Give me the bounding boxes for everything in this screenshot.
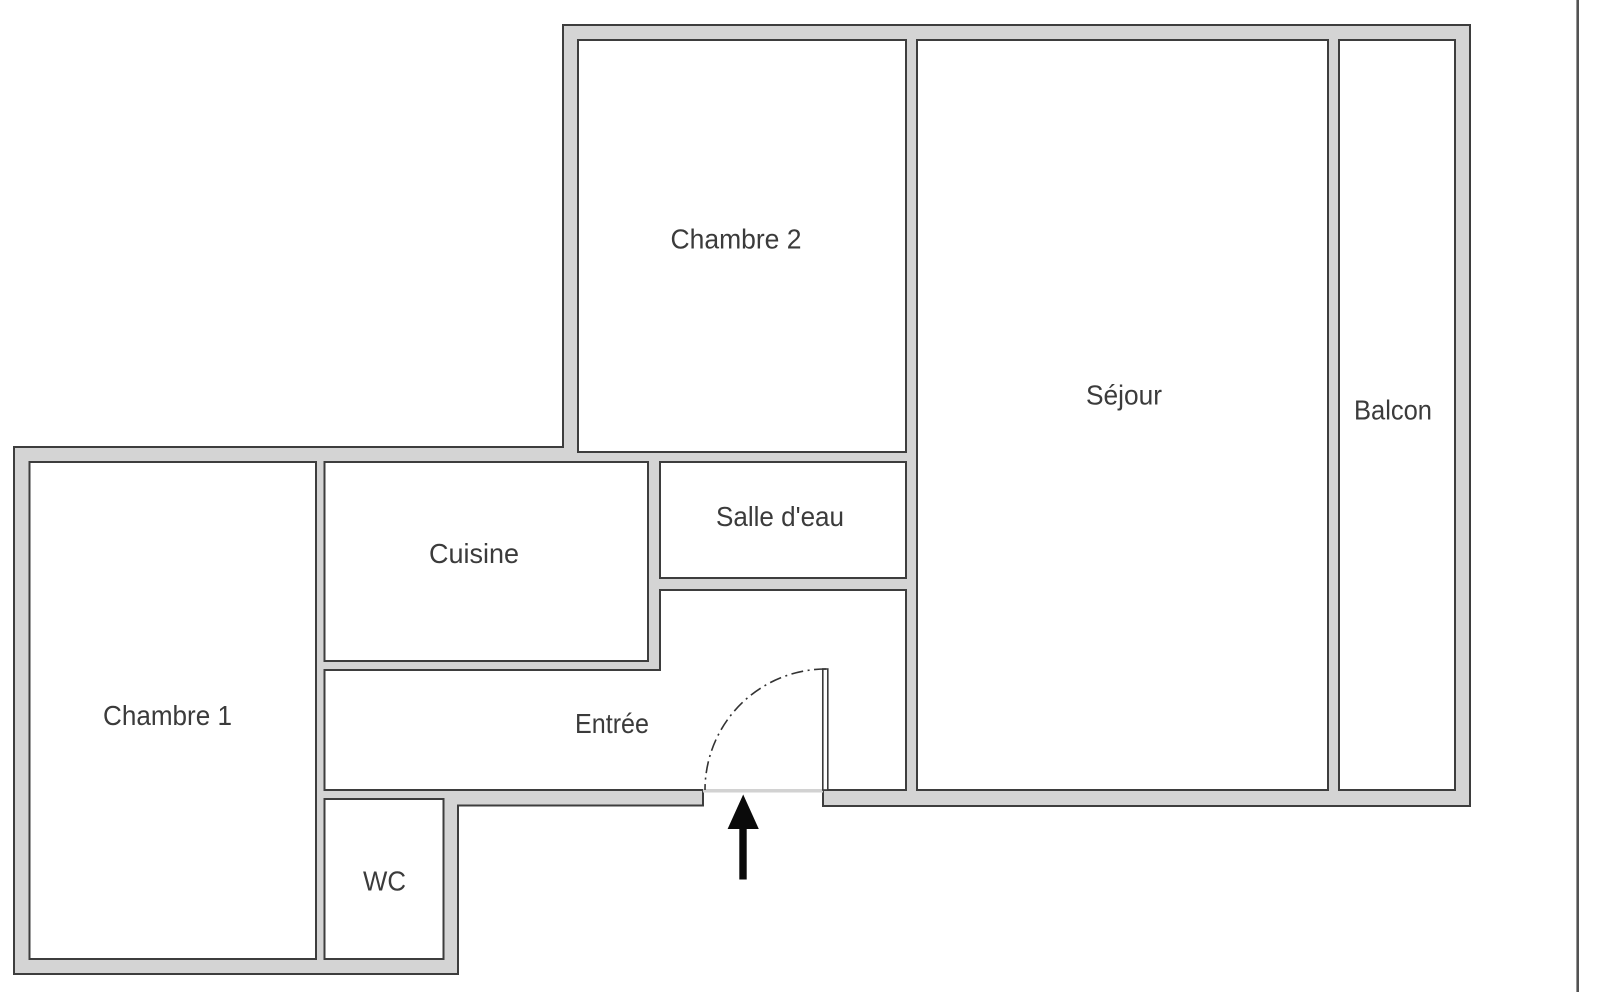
svg-text:Séjour: Séjour [1086,380,1162,411]
svg-text:Salle d'eau: Salle d'eau [716,501,844,532]
svg-text:Chambre 2: Chambre 2 [671,224,802,255]
svg-text:Balcon: Balcon [1354,395,1432,426]
svg-text:WC: WC [363,866,406,897]
svg-text:Cuisine: Cuisine [429,538,519,569]
svg-text:Entrée: Entrée [575,708,649,739]
svg-text:Chambre 1: Chambre 1 [103,700,232,731]
